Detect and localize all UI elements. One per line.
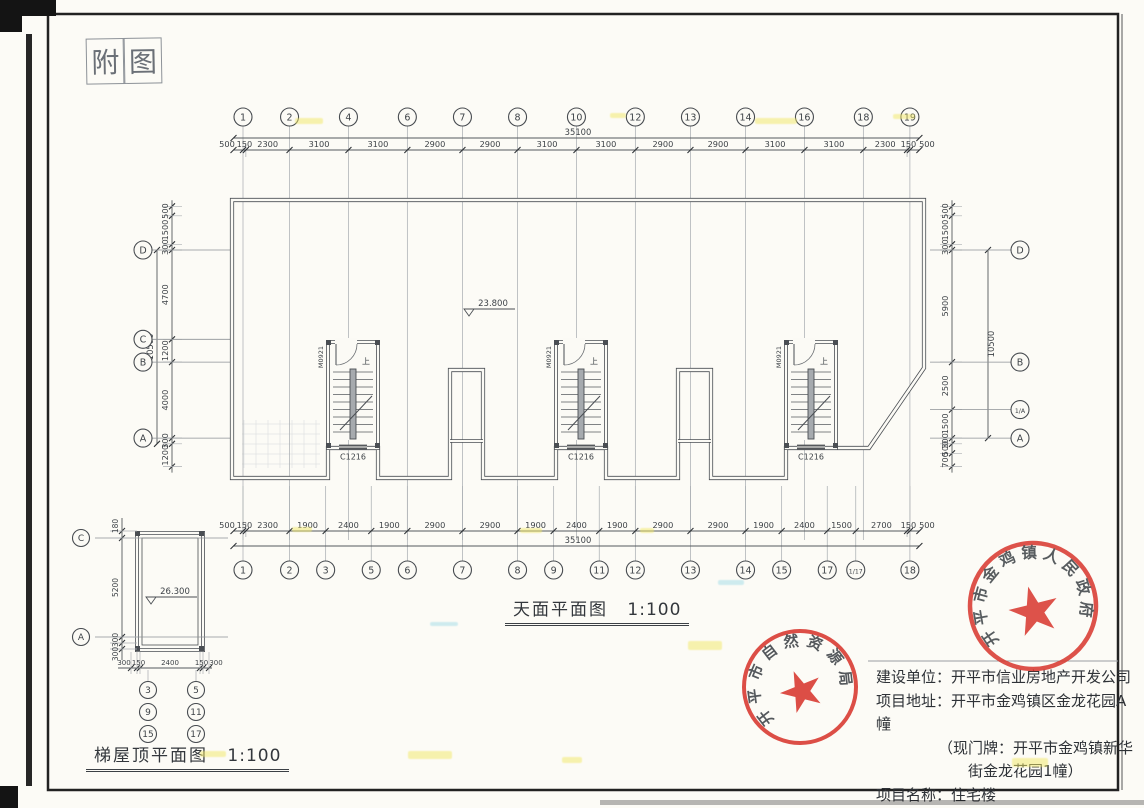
dim-label: 2300 [257,139,278,149]
grid-bubble-label: 5 [193,686,199,696]
grid-bubble-label: 2 [287,112,293,123]
dim-label: 300 [160,239,170,255]
stair-stringer [578,369,584,439]
wall-post [375,340,380,345]
dim-label: 500 [919,520,935,530]
grid-bubble-label: C [140,335,147,346]
stair-up-label: 上 [362,357,370,366]
grid-bubble-label: 7 [459,565,465,576]
dim-label: 2700 [871,520,892,530]
overall-dim: 35100 [565,127,592,137]
scan-corner-mark [0,0,22,32]
dim-label: 1900 [607,520,628,530]
dim-label: 1200 [160,340,170,361]
dim-label: 2900 [708,139,729,149]
window-label: C1216 [340,453,366,462]
dim-label: 1500 [940,413,950,434]
wall-post [833,443,838,448]
grid-bubble-label: 8 [515,565,521,576]
grid-bubble-label: 1 [240,112,246,123]
grid-bubble-label: 15 [142,730,153,740]
grid-bubble-label: 15 [776,565,788,576]
grid-bubble-label: 7 [459,112,465,123]
dim-label: 180 [111,519,120,534]
grid-bubble-label: 17 [190,730,201,740]
door-label: M0921 [775,346,783,368]
grid-bubble-label: 12 [629,565,641,576]
dim-label: 2400 [161,659,179,667]
door-opening [793,338,815,347]
dim-label: 500 [219,520,235,530]
highlight-mark [408,751,452,759]
dim-label: 2400 [794,520,815,530]
grid-bubble-label: 1/17 [849,568,863,575]
grid-bubble-label: 9 [551,565,557,576]
highlight-mark [755,118,797,124]
grid-bubble-label: A [78,633,85,643]
small-caption-scale: 1:100 [227,746,281,766]
small-caption-text: 梯屋顶平面图 [94,746,208,766]
scan-corner-mark [0,786,18,808]
scan-edge-shadow [600,800,1144,805]
dim-label: 1500 [831,520,852,530]
dim-label: 700 [940,452,950,468]
elevation-value: 26.300 [160,587,190,597]
dim-label: 3100 [309,139,330,149]
highlight-mark [200,751,226,757]
grid-bubble-label: 1/A [1015,408,1026,415]
wall-post [554,443,559,448]
dim-label: 150 [901,520,917,530]
wall-post [199,646,204,651]
dim-label: 500 [919,139,935,149]
wall-post [326,340,331,345]
dim-label: 300 [209,659,222,667]
grid-bubble-label: 4 [345,112,351,123]
grid-bubble-label: B [1017,357,1024,368]
grid-bubble-label: 11 [593,565,605,576]
highlight-mark [893,114,915,119]
dim-label: 2500 [940,375,950,396]
grid-bubble-label: 3 [145,686,151,696]
dim-label: 1900 [753,520,774,530]
info-line-address: 项目地址：开平市金鸡镇区金龙花园A幢 [876,690,1138,737]
info-line-address-cont: 街金龙花园1幢） [876,760,1138,784]
dim-label: 150 [132,659,145,667]
elevation-triangle-icon [146,597,156,604]
grid-bubble-label: 2 [287,565,293,576]
wall-post [603,443,608,448]
dim-label: 2900 [708,520,729,530]
grid-bubble-label: 10 [570,112,582,123]
main-caption-scale: 1:100 [627,600,681,620]
marker-mark [430,622,458,626]
main-plan-caption: 天面平面图 1:100 [505,595,689,620]
dim-label: 500 [160,203,170,219]
dim-label: 150 [237,139,253,149]
dim-label: 2900 [652,139,673,149]
highlight-mark [520,528,542,533]
sheet-tag-char: 图 [123,37,163,84]
dim-label: 1200 [160,445,170,466]
dim-label: 500 [940,203,950,219]
highlight-mark [295,118,323,124]
wall-post [326,443,331,448]
wall-post [375,443,380,448]
stair-up-label: 上 [820,357,828,366]
highlight-mark [610,113,626,118]
dim-label: 2900 [424,520,445,530]
window-label: C1216 [568,453,594,462]
grid-bubble-label: C [78,534,84,544]
stair-up-label: 上 [590,357,598,366]
sheet-tag-box: 附 图 [86,37,162,84]
generated-plan-geometry: 3510015023003100310029002900310031002900… [73,108,1030,743]
door-label: M0921 [545,346,553,368]
grid-bubble-label: 13 [684,112,696,123]
grid-bubble-label: D [1016,245,1023,256]
dim-label: 2400 [566,520,587,530]
dim-label: 4700 [160,284,170,305]
dim-label: 1500 [160,220,170,241]
wall-post [784,340,789,345]
dim-label: 2400 [338,520,359,530]
dim-label: 3100 [823,139,844,149]
dim-label: 500 [219,139,235,149]
grid-bubble-label: 3 [323,565,329,576]
elevation-value: 23.800 [478,299,508,309]
dim-label: 3100 [537,139,558,149]
stair-stringer [808,369,814,439]
wall-post [833,340,838,345]
grid-bubble-label: 18 [904,565,916,576]
marker-mark [718,580,744,585]
dim-label: 2300 [257,520,278,530]
dim-label: 1500 [940,220,950,241]
grid-bubble-label: 14 [740,565,752,576]
highlight-mark [688,641,722,650]
grid-bubble-label: 1 [240,565,246,576]
grid-bubble-label: 5 [368,565,374,576]
dim-label: 3100 [765,139,786,149]
scan-edge-strip [26,34,32,786]
dim-label: 2900 [480,139,501,149]
grid-bubble-label: A [1017,433,1024,444]
overall-dim: 10500 [986,331,996,358]
grid-bubble-label: 14 [740,112,752,123]
dim-label: 4000 [160,390,170,411]
highlight-mark [562,757,582,763]
stair-stringer [350,369,356,439]
wall-post [199,531,204,536]
highlight-mark [640,528,654,533]
grid-bubble-label: 6 [404,565,410,576]
dim-label: 150 [901,139,917,149]
grid-bubble-label: 11 [190,708,201,718]
info-line-address-cont: （现门牌：开平市金鸡镇新华 [876,737,1138,761]
dim-label: 2900 [424,139,445,149]
grid-bubble-label: 9 [145,708,151,718]
door-label: M0921 [317,346,325,368]
dim-label: 300 [111,633,120,648]
grid-bubble-label: 18 [857,112,869,123]
project-info-block: 建设单位：开平市信业房地产开发公司 项目地址：开平市金鸡镇区金龙花园A幢 （现门… [876,666,1138,807]
grid-bubble-label: 8 [515,112,521,123]
dim-label: 5900 [940,296,950,317]
door-opening [335,338,357,347]
sheet-tag-char: 附 [86,38,126,85]
dim-label: 300 [117,659,130,667]
dim-label: 3100 [595,139,616,149]
wall-post [554,340,559,345]
grid-bubble-label: 13 [684,565,696,576]
dim-label: 300 [940,239,950,255]
wall-post [135,646,140,651]
wall-post [784,443,789,448]
dim-label: 5200 [111,578,120,597]
overall-dim: 35100 [565,535,592,545]
main-caption-text: 天面平面图 [513,600,608,620]
scanned-drawing-sheet: 3510015023003100310029002900310031002900… [0,0,1144,808]
grid-bubble-label: B [140,358,147,369]
grid-bubble-label: 6 [404,112,410,123]
grid-bubble-label: A [140,434,147,445]
dim-label: 3100 [367,139,388,149]
dim-label: 1900 [379,520,400,530]
info-line-owner: 建设单位：开平市信业房地产开发公司 [876,666,1138,690]
grid-bubble-label: D [139,245,146,256]
dim-label: 150 [237,520,253,530]
grid-bubble-label: 17 [821,565,833,576]
grid-bubble-label: 16 [798,112,810,123]
elevation-triangle-icon [464,309,474,316]
grid-bubble-label: 12 [629,112,641,123]
wall-post [603,340,608,345]
window-label: C1216 [798,453,824,462]
wall-post [135,531,140,536]
dim-label: 2900 [652,520,673,530]
small-plan-caption: 梯屋顶平面图 1:100 [86,741,289,766]
highlight-mark [1012,758,1048,767]
highlight-mark [292,527,312,532]
dim-label: 2900 [480,520,501,530]
dim-label: 150 [195,659,208,667]
dim-label: 2300 [875,139,896,149]
door-opening [563,338,585,347]
